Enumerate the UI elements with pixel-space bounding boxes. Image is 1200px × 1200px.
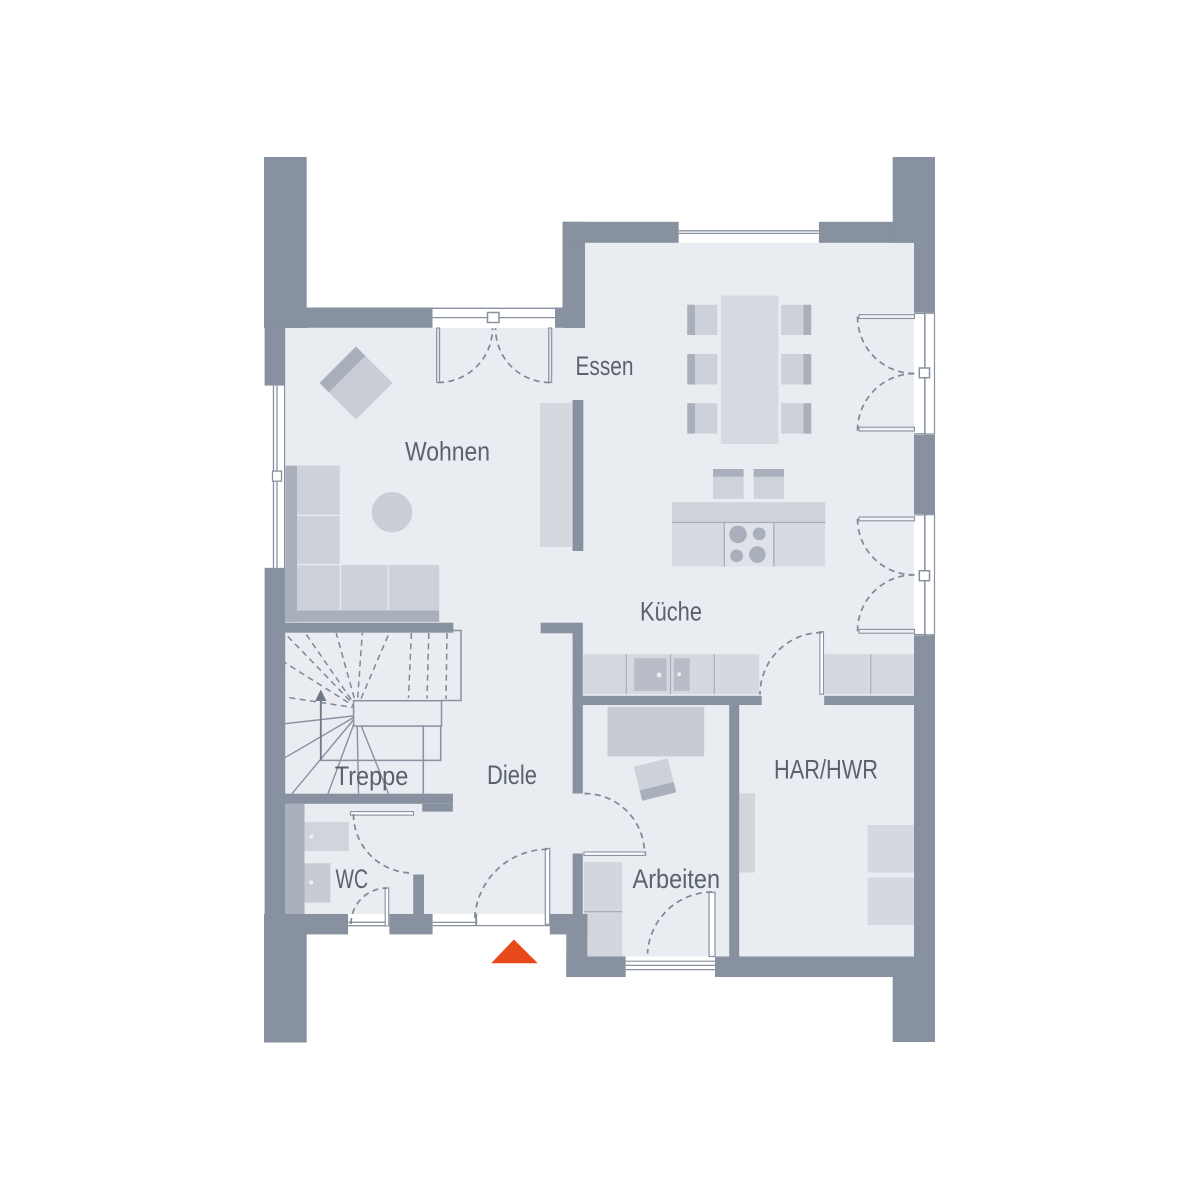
svg-text:HAR/HWR: HAR/HWR	[774, 754, 878, 784]
svg-text:Wohnen: Wohnen	[405, 437, 490, 467]
svg-text:Diele: Diele	[487, 760, 537, 790]
svg-text:Arbeiten: Arbeiten	[633, 864, 721, 894]
svg-text:Treppe: Treppe	[335, 761, 409, 791]
svg-text:Essen: Essen	[576, 351, 634, 381]
svg-text:WC: WC	[336, 864, 369, 894]
svg-text:Küche: Küche	[640, 597, 702, 627]
